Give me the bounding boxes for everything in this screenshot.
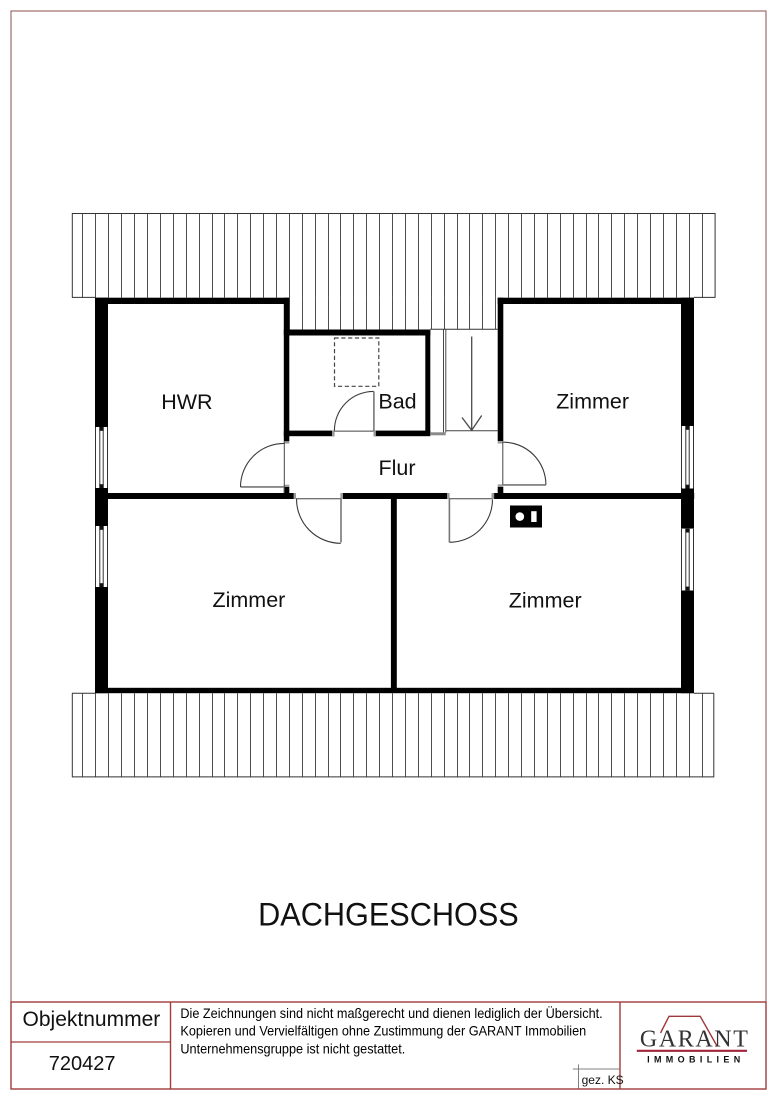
svg-text:Die Zeichnungen sind nicht maß: Die Zeichnungen sind nicht maßgerecht un… <box>180 1005 602 1020</box>
svg-text:720427: 720427 <box>49 1053 116 1075</box>
svg-text:Objektnummer: Objektnummer <box>23 1008 161 1031</box>
svg-text:HWR: HWR <box>161 390 212 414</box>
svg-text:Bad: Bad <box>378 390 416 414</box>
svg-text:Zimmer: Zimmer <box>556 390 629 414</box>
svg-text:Zimmer: Zimmer <box>509 589 582 613</box>
svg-text:Kopieren und Vervielfältigen o: Kopieren und Vervielfältigen ohne Zustim… <box>180 1023 586 1038</box>
svg-text:GARANT: GARANT <box>640 1026 750 1052</box>
svg-text:gez. KS: gez. KS <box>582 1073 624 1087</box>
svg-text:Unternehmensgruppe ist nicht g: Unternehmensgruppe ist nicht gestattet. <box>180 1041 405 1056</box>
svg-text:Zimmer: Zimmer <box>212 588 285 612</box>
svg-text:Flur: Flur <box>378 456 415 480</box>
svg-text:DACHGESCHOSS: DACHGESCHOSS <box>258 897 519 933</box>
svg-text:IMMOBILIEN: IMMOBILIEN <box>647 1055 745 1065</box>
